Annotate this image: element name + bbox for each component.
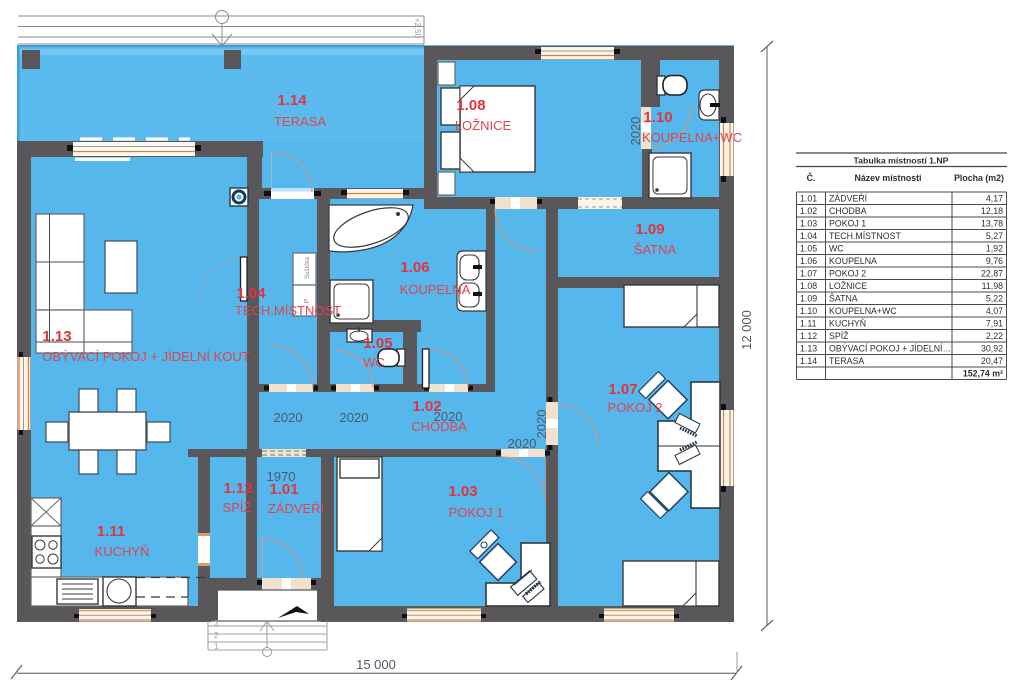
svg-text:7,91: 7,91 xyxy=(986,318,1003,328)
svg-text:LOŽNICE: LOŽNICE xyxy=(455,118,512,133)
svg-text:WC: WC xyxy=(829,243,844,253)
svg-text:1.05: 1.05 xyxy=(363,335,392,352)
svg-text:1.13: 1.13 xyxy=(800,343,817,353)
svg-text:TECH.MÍSTNOST: TECH.MÍSTNOST xyxy=(235,303,341,318)
svg-text:KOUPELNA: KOUPELNA xyxy=(400,282,471,297)
svg-text:1.07: 1.07 xyxy=(608,381,637,398)
svg-text:1.06: 1.06 xyxy=(800,256,817,266)
svg-text:ZÁDVEŘÍ: ZÁDVEŘÍ xyxy=(268,501,325,516)
svg-text:POKOJ 2: POKOJ 2 xyxy=(608,400,663,415)
svg-text:2020: 2020 xyxy=(534,410,549,439)
svg-text:2020: 2020 xyxy=(274,410,303,425)
svg-text:ŠATNA: ŠATNA xyxy=(829,293,858,303)
svg-text:3: 3 xyxy=(214,619,219,628)
svg-text:Plocha (m2): Plocha (m2) xyxy=(954,173,1004,183)
svg-text:SPÍŽ: SPÍŽ xyxy=(223,500,252,515)
svg-text:1: 1 xyxy=(214,642,219,651)
svg-text:TERASA: TERASA xyxy=(274,114,326,129)
svg-text:Tabulka místností 1.NP: Tabulka místností 1.NP xyxy=(854,156,949,166)
svg-text:5,27: 5,27 xyxy=(986,231,1003,241)
svg-text:CHODBA: CHODBA xyxy=(829,206,867,216)
svg-text:1.05: 1.05 xyxy=(800,243,817,253)
svg-text:TECH.MÍSTNOST: TECH.MÍSTNOST xyxy=(829,231,901,241)
svg-text:KUCHYŇ: KUCHYŇ xyxy=(95,544,150,559)
svg-text:KOUPELNA+WC: KOUPELNA+WC xyxy=(642,130,742,145)
svg-text:1.13: 1.13 xyxy=(42,328,71,345)
svg-text:4,17: 4,17 xyxy=(986,193,1003,203)
svg-text:OBÝVACÍ POKOJ + JÍDELNÍ KOUT: OBÝVACÍ POKOJ + JÍDELNÍ KOUT xyxy=(42,349,250,364)
svg-text:12,18: 12,18 xyxy=(981,206,1003,216)
svg-text:1.09: 1.09 xyxy=(635,221,664,238)
svg-text:1.02: 1.02 xyxy=(800,206,817,216)
svg-text:POKOJ 1: POKOJ 1 xyxy=(829,218,866,228)
svg-text:1.04: 1.04 xyxy=(236,285,266,302)
svg-text:Č.: Č. xyxy=(807,172,816,183)
svg-text:13,78: 13,78 xyxy=(981,218,1003,228)
svg-text:2020: 2020 xyxy=(628,117,643,146)
svg-text:152,74 m²: 152,74 m² xyxy=(963,368,1003,378)
svg-text:1.12: 1.12 xyxy=(223,480,252,497)
svg-text:1.10: 1.10 xyxy=(643,109,672,126)
svg-text:Název místnosti: Název místnosti xyxy=(855,173,922,183)
svg-text:2,22: 2,22 xyxy=(986,331,1003,341)
svg-text:1,92: 1,92 xyxy=(986,243,1003,253)
svg-text:SPÍŽ: SPÍŽ xyxy=(829,331,849,341)
svg-text:ŠATNA: ŠATNA xyxy=(634,242,677,257)
svg-text:1.07: 1.07 xyxy=(800,268,817,278)
svg-text:15 000: 15 000 xyxy=(356,657,396,672)
svg-text:1.10: 1.10 xyxy=(800,306,817,316)
svg-text:1.06: 1.06 xyxy=(400,259,429,276)
svg-text:1.11: 1.11 xyxy=(97,523,125,540)
svg-text:20,47: 20,47 xyxy=(981,356,1003,366)
svg-text:POKOJ 1: POKOJ 1 xyxy=(449,505,504,520)
svg-text:OBÝVACÍ POKOJ + JÍDELNÍ…: OBÝVACÍ POKOJ + JÍDELNÍ… xyxy=(829,343,951,353)
svg-text:9,76: 9,76 xyxy=(986,256,1003,266)
svg-text:LOŽNICE: LOŽNICE xyxy=(829,281,867,291)
svg-text:1.03: 1.03 xyxy=(800,218,817,228)
svg-text:1.14: 1.14 xyxy=(277,92,307,109)
svg-text:2020: 2020 xyxy=(508,436,537,451)
svg-text:1.03: 1.03 xyxy=(448,483,477,500)
svg-text:ZÁDVEŘÍ: ZÁDVEŘÍ xyxy=(829,193,868,203)
svg-text:KUCHYŇ: KUCHYŇ xyxy=(829,318,866,328)
svg-text:2: 2 xyxy=(214,631,219,640)
svg-text:2020: 2020 xyxy=(434,409,463,424)
svg-text:1.08: 1.08 xyxy=(800,281,817,291)
svg-text:KOUPELNA: KOUPELNA xyxy=(829,256,877,266)
svg-text:TERASA: TERASA xyxy=(829,356,864,366)
svg-text:4,07: 4,07 xyxy=(986,306,1003,316)
svg-text:1.04: 1.04 xyxy=(800,231,817,241)
svg-text:WC: WC xyxy=(363,355,385,370)
svg-text:POKOJ 2: POKOJ 2 xyxy=(829,268,866,278)
svg-text:1.14: 1.14 xyxy=(800,356,817,366)
svg-text:22,87: 22,87 xyxy=(981,268,1003,278)
svg-text:1.01: 1.01 xyxy=(269,481,298,498)
svg-text:+2,50: +2,50 xyxy=(413,18,422,39)
svg-text:2020: 2020 xyxy=(340,410,369,425)
svg-text:11,98: 11,98 xyxy=(982,281,1003,291)
svg-text:1.11: 1.11 xyxy=(800,318,817,328)
svg-text:5,22: 5,22 xyxy=(986,293,1003,303)
svg-text:1.08: 1.08 xyxy=(456,97,485,114)
svg-text:12 000: 12 000 xyxy=(739,310,754,350)
svg-text:30,92: 30,92 xyxy=(981,343,1003,353)
svg-text:1.12: 1.12 xyxy=(800,331,817,341)
svg-text:KOUPELNA+WC: KOUPELNA+WC xyxy=(829,306,897,316)
svg-text:1.09: 1.09 xyxy=(800,293,817,303)
svg-text:Sušička: Sušička xyxy=(304,256,311,279)
svg-text:1.01: 1.01 xyxy=(800,193,817,203)
